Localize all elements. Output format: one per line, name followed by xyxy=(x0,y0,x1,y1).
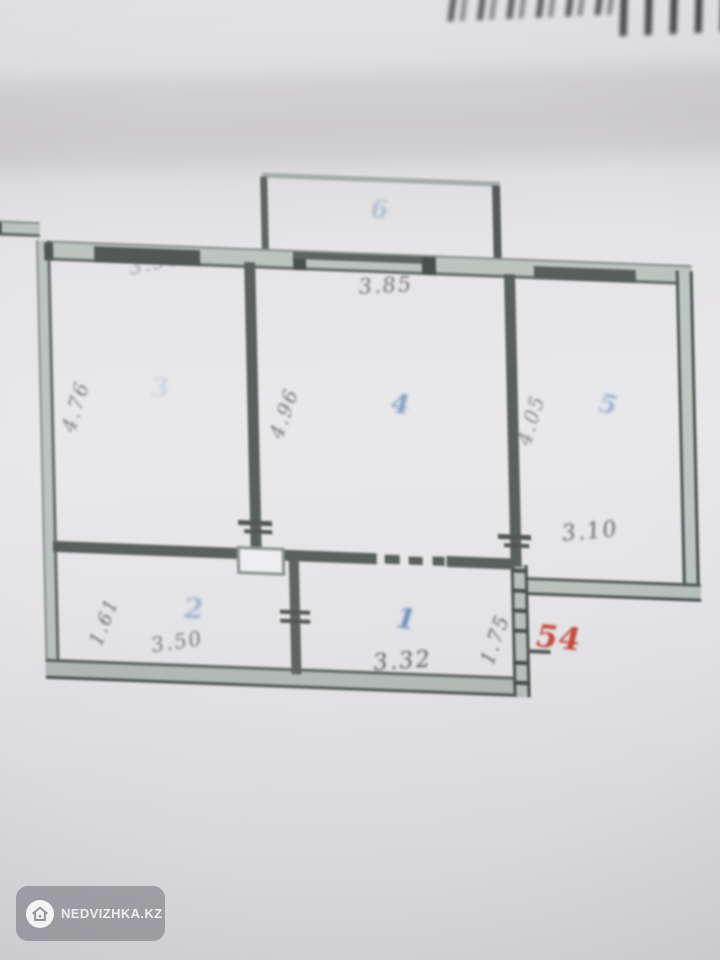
wall-hatch xyxy=(513,681,530,686)
floor-plan-photo: 3.56 3.85 4.76 4.96 4.05 3.10 1.61 3.50 … xyxy=(0,0,720,960)
window-tick xyxy=(44,242,53,260)
door-tick xyxy=(504,543,529,548)
wall-stub-left xyxy=(0,221,40,238)
dim-room1-height: 1.75 xyxy=(475,610,515,668)
wall-hatch xyxy=(512,629,529,634)
house-icon xyxy=(26,900,54,928)
opening-dash xyxy=(409,557,423,566)
room-number-4: 4 xyxy=(390,389,410,421)
outer-wall-left xyxy=(36,240,60,661)
dim-room2-height: 1.61 xyxy=(85,594,123,649)
door-tick xyxy=(498,534,531,540)
balcony-door-post xyxy=(422,257,436,276)
dim-room2-width: 3.50 xyxy=(149,626,205,657)
door-tick xyxy=(280,610,310,615)
room-number-balcony: 6 xyxy=(370,195,388,225)
wall-hatch xyxy=(512,609,529,614)
room-number-3: 3 xyxy=(151,373,170,404)
cutoff-text-marks xyxy=(439,0,620,22)
watermark-badge: NEDVIZHKA.KZ xyxy=(16,886,165,941)
room5-bottom-wall xyxy=(515,577,701,602)
floor-plan: 3.56 3.85 4.76 4.96 4.05 3.10 1.61 3.50 … xyxy=(36,240,708,728)
wall-hatch xyxy=(511,588,528,593)
balcony-wall-top xyxy=(262,173,500,187)
door-tick xyxy=(238,520,272,526)
outer-wall-right xyxy=(676,271,700,594)
wall-room1-room2 xyxy=(289,558,302,675)
balcony-wall-right xyxy=(492,185,502,259)
outer-wall-bottom xyxy=(46,659,526,697)
cutoff-text-marks xyxy=(611,0,720,37)
opening-dash xyxy=(433,556,445,565)
door-tick xyxy=(280,619,310,624)
photo-shadow-band xyxy=(0,62,720,173)
door-tick xyxy=(244,529,272,534)
room-number-1: 1 xyxy=(394,601,417,637)
dim-middle-height: 4.96 xyxy=(264,384,304,442)
dim-top-middle: 3.85 xyxy=(357,272,414,299)
room-number-5: 5 xyxy=(597,388,619,421)
interior-wall xyxy=(53,541,237,559)
dim-room1-width: 3.32 xyxy=(372,646,434,676)
window-room5 xyxy=(534,266,636,283)
dim-left-height: 4.76 xyxy=(56,377,94,435)
room-number-2: 2 xyxy=(184,592,204,626)
total-area-note: 54 xyxy=(535,618,582,659)
door-threshold xyxy=(237,546,286,576)
opening-dash xyxy=(385,555,400,565)
watermark-brand: NEDVIZHKA.KZ xyxy=(61,906,163,921)
interior-wall xyxy=(447,556,515,570)
wall-hatch xyxy=(513,661,530,666)
dim-room5-width: 3.10 xyxy=(560,517,620,547)
balcony-wall-left xyxy=(260,177,269,251)
wall-room3-room4 xyxy=(244,262,262,555)
